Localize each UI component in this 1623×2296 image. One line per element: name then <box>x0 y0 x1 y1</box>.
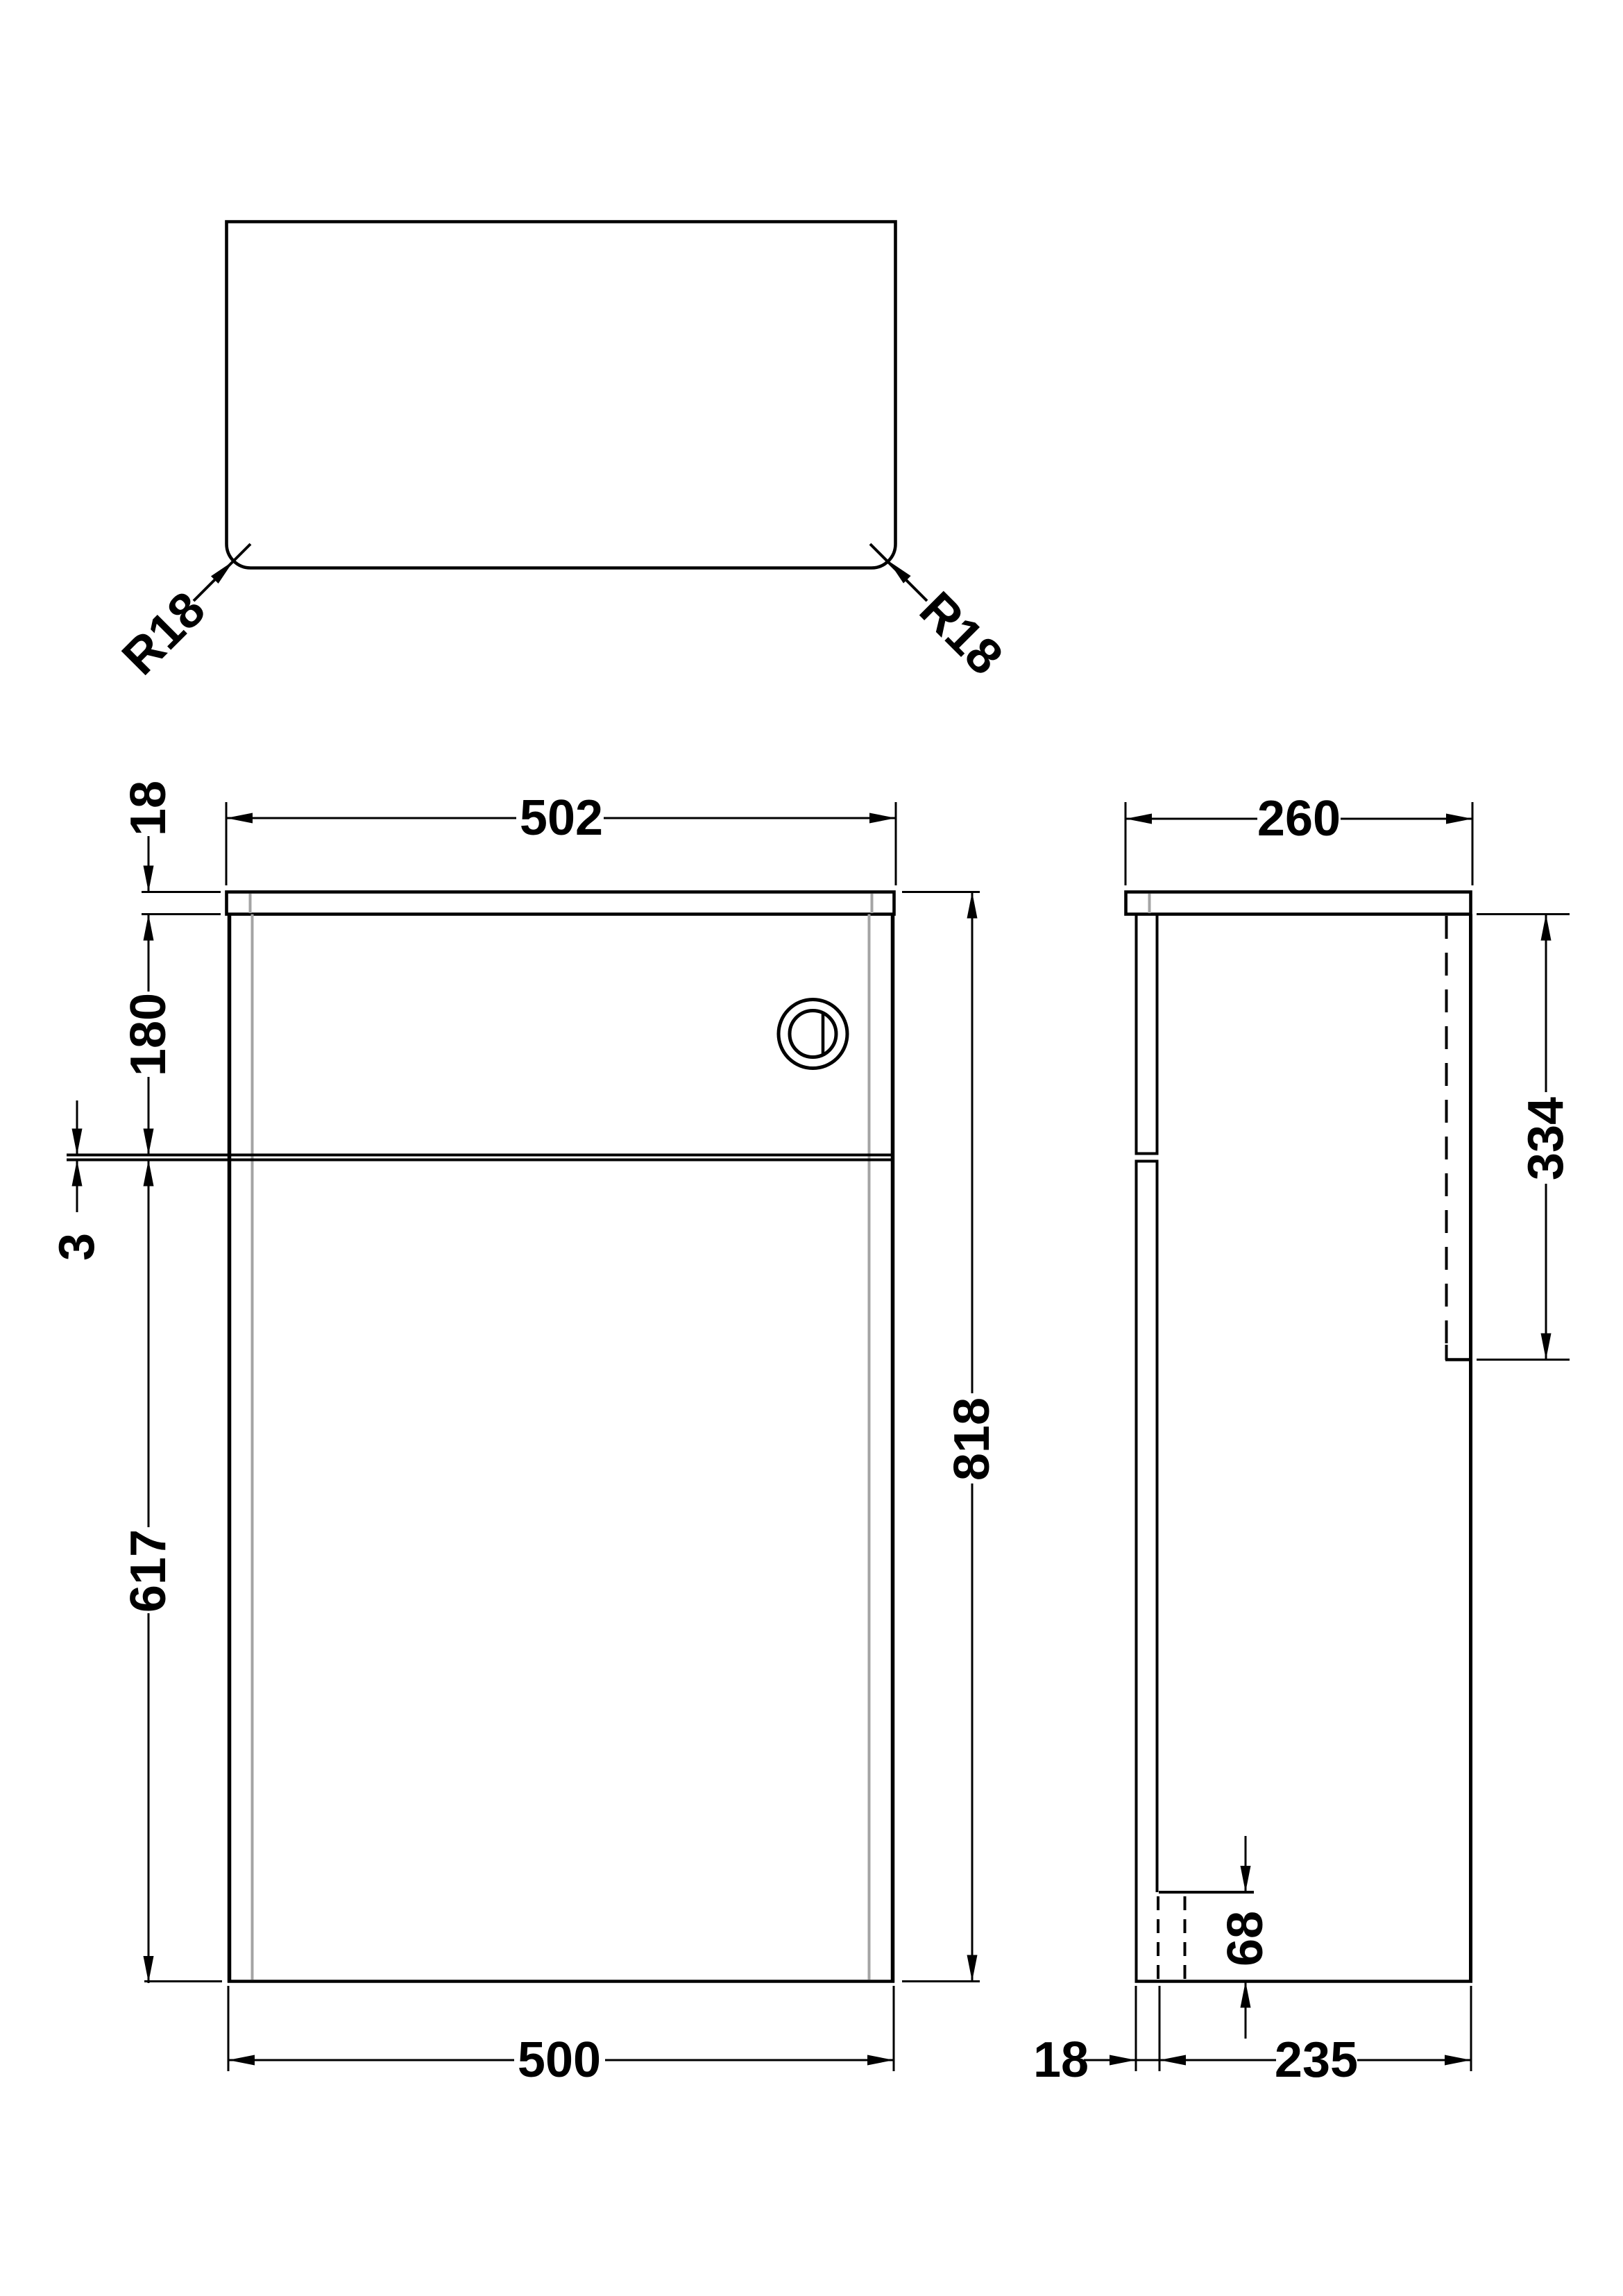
svg-text:502: 502 <box>520 790 603 846</box>
svg-text:818: 818 <box>944 1397 1000 1481</box>
svg-text:617: 617 <box>121 1529 176 1613</box>
svg-text:334: 334 <box>1518 1097 1574 1180</box>
svg-text:3: 3 <box>49 1233 105 1261</box>
svg-text:18: 18 <box>1033 2032 1089 2088</box>
svg-text:68: 68 <box>1218 1911 1273 1966</box>
svg-text:235: 235 <box>1275 2032 1358 2088</box>
svg-text:500: 500 <box>518 2032 601 2088</box>
svg-text:260: 260 <box>1257 791 1341 847</box>
svg-text:180: 180 <box>121 993 176 1076</box>
svg-text:18: 18 <box>121 781 176 836</box>
